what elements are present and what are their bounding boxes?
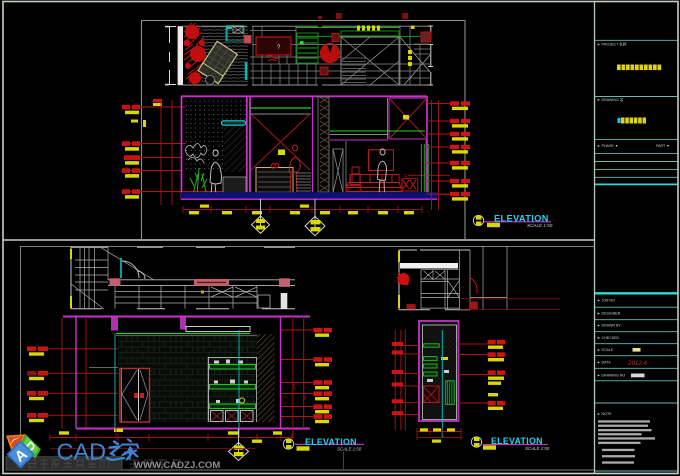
svg-text:ELEVATION: ELEVATION <box>305 437 357 447</box>
svg-text:2012.4: 2012.4 <box>627 360 647 367</box>
svg-text:► DATE: ► DATE <box>597 361 611 365</box>
svg-text:850: 850 <box>303 394 307 400</box>
svg-text:2350: 2350 <box>293 382 297 390</box>
svg-text:WWW.CADZJ.COM: WWW.CADZJ.COM <box>134 460 220 471</box>
svg-text:► SCALE: ► SCALE <box>597 348 614 352</box>
svg-text:► PHASE ▼: ► PHASE ▼ <box>597 144 618 148</box>
svg-text:SCALE 1:50: SCALE 1:50 <box>525 446 550 451</box>
svg-text:► JOB NO: ► JOB NO <box>597 299 615 303</box>
svg-text:SCALE 1:50: SCALE 1:50 <box>527 223 553 228</box>
svg-text:CAD: CAD <box>57 439 107 465</box>
svg-text:SCALE 1:50: SCALE 1:50 <box>337 447 362 452</box>
svg-text:► NOTE: ► NOTE <box>597 412 612 416</box>
svg-text:► DRAWING NO: ► DRAWING NO <box>597 373 625 377</box>
svg-text:► DRAWING 名: ► DRAWING 名 <box>597 97 624 102</box>
svg-text:► DRAWN BY: ► DRAWN BY <box>597 324 621 328</box>
svg-text:ELEVATION: ELEVATION <box>494 214 549 224</box>
svg-text:ELEVATION: ELEVATION <box>491 436 543 446</box>
svg-text:PART ▼: PART ▼ <box>656 144 670 148</box>
svg-text:► CHECKED: ► CHECKED <box>597 336 620 340</box>
svg-text:► PROJECT 名称: ► PROJECT 名称 <box>597 42 627 47</box>
svg-text:► DESIGNER: ► DESIGNER <box>597 312 621 316</box>
